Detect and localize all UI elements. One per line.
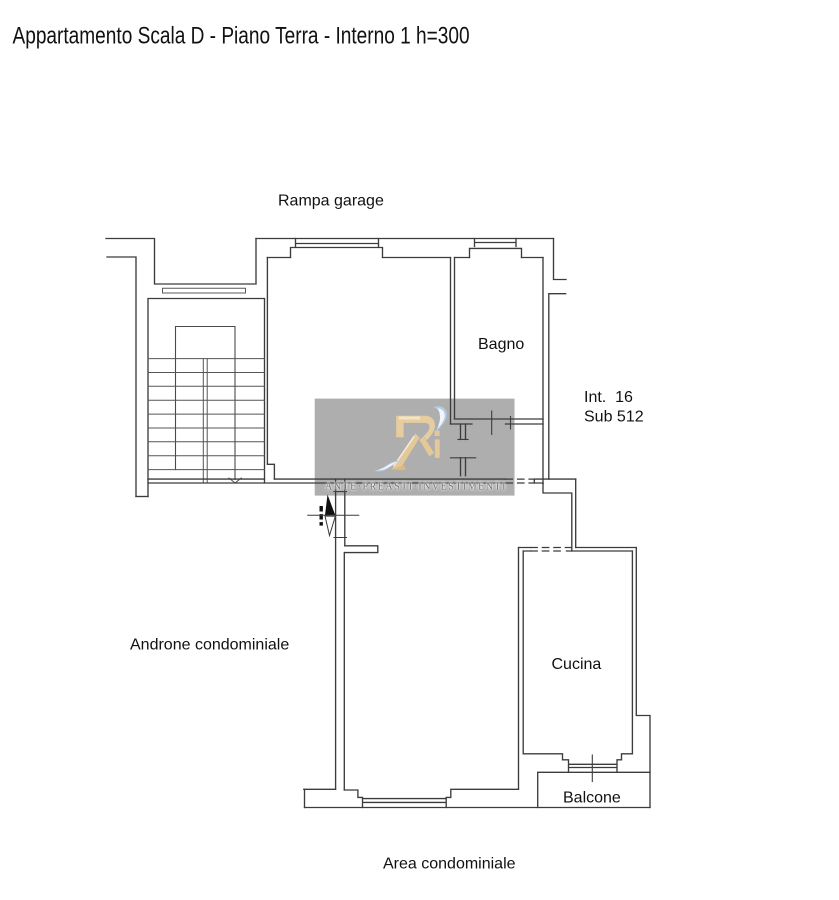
svg-text:Sub 512: Sub 512: [584, 409, 644, 426]
svg-text:ANTE·PREASTI·INVESTIMENTI: ANTE·PREASTI·INVESTIMENTI: [325, 482, 507, 493]
svg-text:Cucina: Cucina: [552, 656, 602, 673]
svg-text:Androne condominiale: Androne condominiale: [130, 637, 289, 654]
svg-text:Area condominiale: Area condominiale: [383, 856, 516, 873]
svg-text:Bagno: Bagno: [478, 336, 524, 353]
svg-text:Int. 16: Int. 16: [584, 389, 633, 406]
svg-text:Balcone: Balcone: [563, 790, 621, 807]
svg-text:Appartamento Scala D - Piano T: Appartamento Scala D - Piano Terra - Int…: [13, 21, 470, 49]
svg-text:Rampa garage: Rampa garage: [278, 193, 384, 210]
